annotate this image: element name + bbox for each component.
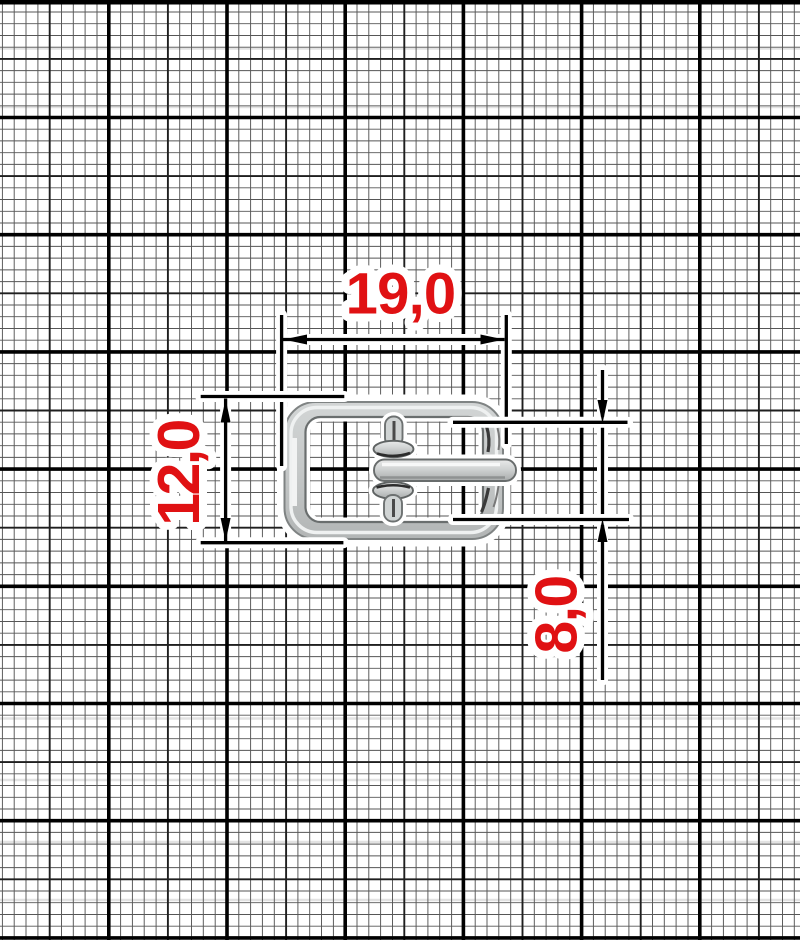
svg-text:19,0: 19,0	[346, 262, 456, 327]
svg-text:12,0: 12,0	[146, 421, 212, 526]
svg-text:8,0: 8,0	[524, 576, 590, 653]
